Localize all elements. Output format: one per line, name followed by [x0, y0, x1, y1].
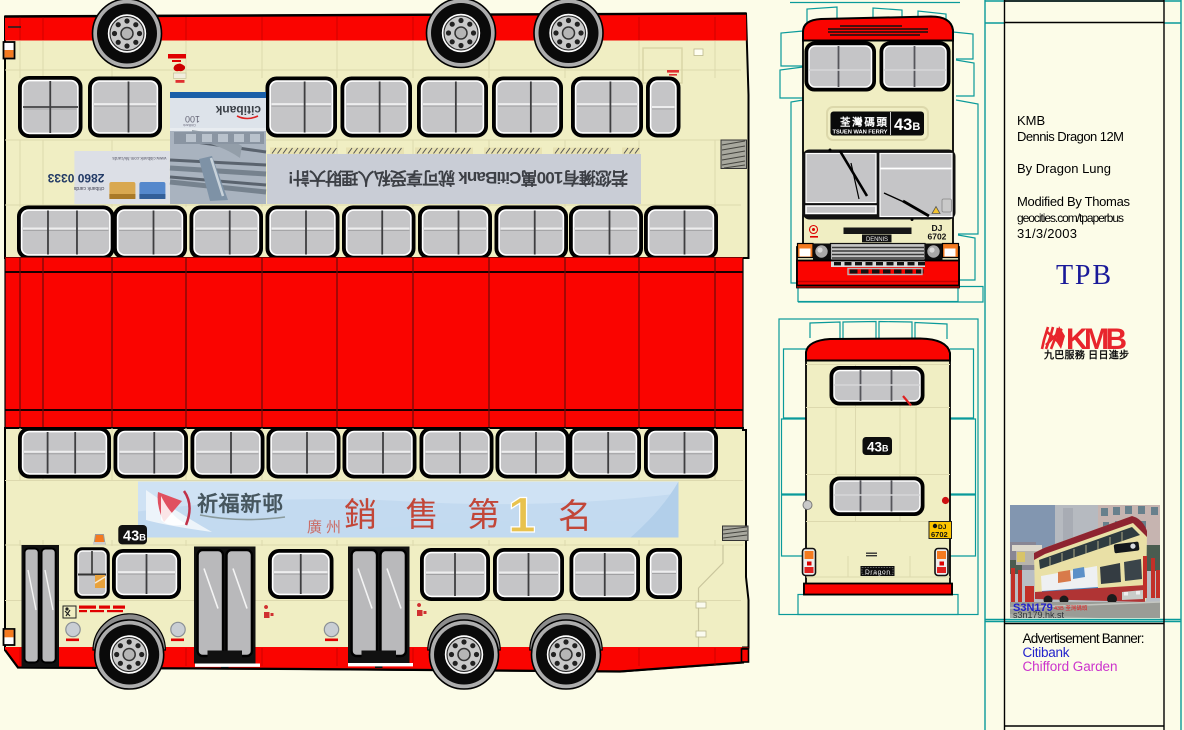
svg-text:Chifford Garden: Chifford Garden: [1023, 659, 1118, 674]
svg-text:九巴服務 日日進步: 九巴服務 日日進步: [1043, 349, 1129, 362]
svg-text:www.citibank.com.hk/cards: www.citibank.com.hk/cards: [112, 156, 167, 161]
svg-text:Citibank: Citibank: [1023, 645, 1070, 660]
svg-text:6702: 6702: [928, 232, 947, 242]
svg-text:CitiBank: CitiBank: [183, 123, 196, 127]
svg-text:1: 1: [508, 487, 536, 543]
svg-text:citibank cards: citibank cards: [73, 185, 104, 191]
svg-text:Advertisement Banner:: Advertisement Banner:: [1023, 631, 1145, 646]
svg-text:Modified By Thomas: Modified By Thomas: [1017, 194, 1131, 209]
svg-text:100: 100: [185, 114, 200, 124]
svg-text:Dennis Dragon 12M: Dennis Dragon 12M: [1017, 129, 1124, 144]
svg-text:荃灣碼頭: 荃灣碼頭: [840, 116, 888, 129]
svg-text:2860 0333: 2860 0333: [47, 171, 104, 185]
svg-text:By Dragon Lung: By Dragon Lung: [1017, 161, 1111, 176]
svg-text:6702: 6702: [931, 530, 948, 539]
svg-text:TPB: TPB: [1056, 260, 1111, 291]
svg-text:s3n179.hk.st: s3n179.hk.st: [1013, 610, 1065, 620]
svg-text:31/3/2003: 31/3/2003: [1017, 226, 1077, 241]
svg-text:geocities.com/tpaperbus: geocities.com/tpaperbus: [1017, 211, 1124, 225]
svg-text:祈福新邨: 祈福新邨: [197, 492, 283, 516]
svg-text:citibank: citibank: [215, 103, 261, 117]
svg-text:KMB: KMB: [1017, 113, 1045, 128]
svg-text:Dragon: Dragon: [865, 569, 890, 576]
svg-text:若您擁有100萬CitiBank 就可享受私人理財大計!: 若您擁有100萬CitiBank 就可享受私人理財大計!: [288, 168, 629, 188]
svg-text:銷 售 第: 銷 售 第: [344, 497, 500, 534]
svg-text:DENNIS: DENNIS: [866, 237, 888, 243]
svg-text:TSUEN WAN FERRY: TSUEN WAN FERRY: [833, 130, 888, 136]
svg-text:名: 名: [558, 498, 592, 536]
